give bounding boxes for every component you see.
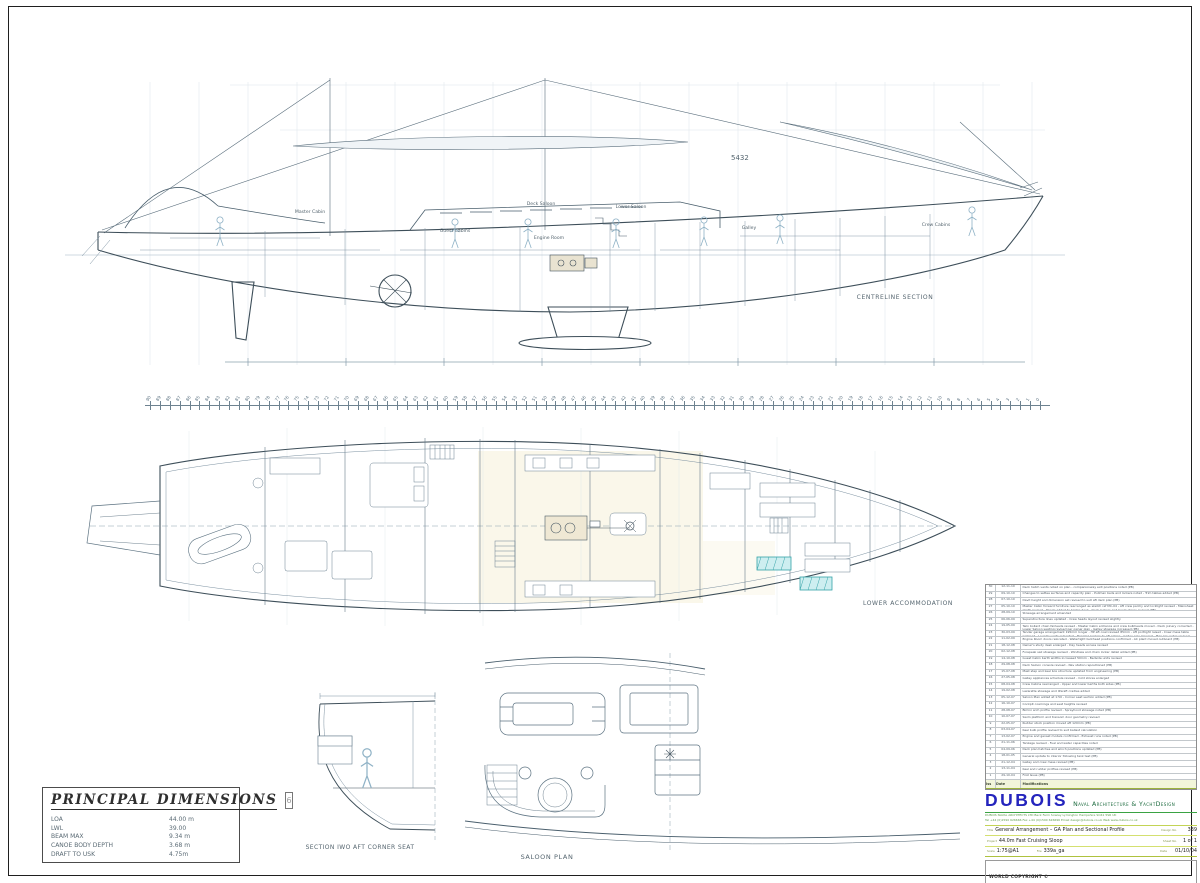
- ruler-tick: [338, 401, 339, 410]
- ruler-tick: [822, 401, 823, 410]
- section-hull: [319, 701, 435, 830]
- dimension-row: BEAM MAX9.34 m: [51, 833, 233, 842]
- file-label: File: [1035, 849, 1044, 853]
- figures: [216, 207, 977, 248]
- scale-value: 1:75@A1: [997, 848, 1035, 854]
- ruler-tick: [763, 401, 764, 410]
- ruler-tick: [961, 401, 962, 410]
- ruler-tick: [466, 401, 467, 410]
- ruler-tick: [605, 401, 606, 410]
- ruler-tick: [911, 401, 912, 410]
- ruler-tick: [635, 401, 636, 410]
- ruler-tick: [852, 401, 853, 410]
- ruler-tick: [704, 401, 705, 410]
- ruler-tick: [813, 401, 814, 410]
- ruler-tick: [150, 401, 151, 410]
- ruler-tick: [447, 401, 448, 410]
- plan-view-label: LOWER ACCOMMODATION: [863, 600, 953, 607]
- ruler-tick: [259, 401, 260, 410]
- title-block-fields: Title General Arrangement – GA Plan and …: [985, 825, 1197, 858]
- scale-label: Scale: [985, 849, 997, 853]
- profile-view-label: CENTRELINE SECTION: [857, 294, 934, 301]
- ruler-tick: [555, 401, 556, 410]
- ruler-tick: [516, 401, 517, 410]
- drawing-sheet: 5432 Master Cabin Guest Cabins Deck Salo…: [0, 0, 1200, 883]
- title-block: DUBOIS Naval Architecture & YachtDesign …: [985, 790, 1197, 878]
- saloon-view-label: SALOON PLAN: [521, 853, 574, 861]
- ruler-tick: [803, 401, 804, 410]
- ruler-number: 5: [985, 397, 991, 402]
- address-line-1: DUBOIS NAVAL ARCHITECTS LTD Beck Farm So…: [985, 814, 1197, 818]
- ruler-tick: [1040, 401, 1041, 410]
- dimensions-ref-box: 6: [285, 792, 292, 809]
- ruler-tick: [190, 401, 191, 410]
- ruler-tick: [724, 401, 725, 410]
- logo-tagline: Naval Architecture & YachtDesign: [1073, 801, 1175, 808]
- interior-lines: [82, 214, 930, 312]
- ruler-number: 6: [975, 397, 981, 402]
- ruler-tick: [753, 401, 754, 410]
- ruler-tick: [684, 401, 685, 410]
- ruler-tick: [199, 401, 200, 410]
- engine-profile: [550, 255, 597, 271]
- ruler-tick: [921, 401, 922, 410]
- ruler-tick: [654, 401, 655, 410]
- rigging-lines: [102, 78, 1042, 236]
- ruler-tick: [674, 401, 675, 410]
- ruler-tick: [644, 401, 645, 410]
- ruler-tick: [872, 401, 873, 410]
- room-label-master-cabin: Master Cabin: [295, 209, 325, 215]
- copyright-title: WORLD COPYRIGHT ©: [989, 875, 1049, 880]
- ruler-tick: [733, 401, 734, 410]
- lower-accommodation-plan: LOWER ACCOMMODATION: [70, 423, 990, 630]
- project-label: Project: [985, 839, 999, 843]
- ruler-tick: [298, 401, 299, 410]
- ruler-tick: [714, 401, 715, 410]
- ruler-tick: [1030, 401, 1031, 410]
- ruler-tick: [229, 401, 230, 410]
- ruler-tick: [457, 401, 458, 410]
- ruler-tick: [694, 401, 695, 410]
- ruler-tick: [1010, 401, 1011, 410]
- deckhouse: [125, 187, 720, 236]
- ruler-tick: [981, 401, 982, 410]
- ruler-tick: [951, 401, 952, 410]
- ruler-tick: [486, 401, 487, 410]
- ruler-tick: [279, 401, 280, 410]
- copyright-box: WORLD COPYRIGHT © Copying, reproduction …: [985, 860, 1197, 883]
- ruler-tick: [308, 401, 309, 410]
- file-name: 339a_ga: [1044, 848, 1158, 854]
- ruler-tick: [832, 401, 833, 410]
- revision-header-row: IssDateModifications: [986, 780, 1196, 789]
- room-label-engine-room: Engine Room: [534, 235, 565, 241]
- section-drawing: SECTION IWO AFT CORNER SEAT: [285, 688, 455, 858]
- saloon-stairs: [487, 765, 517, 805]
- ruler-tick: [377, 401, 378, 410]
- ruler-tick: [971, 401, 972, 410]
- ruler-tick: [417, 401, 418, 410]
- ruler-tick: [348, 401, 349, 410]
- ruler-tick: [1020, 401, 1021, 410]
- ruler-tick: [1000, 401, 1001, 410]
- ruler-tick: [575, 401, 576, 410]
- dimension-row: LWL39.00: [51, 825, 233, 834]
- ruler-tick: [565, 401, 566, 410]
- ruler-tick: [219, 401, 220, 410]
- ruler-tick: [288, 401, 289, 410]
- ruler-tick: [407, 401, 408, 410]
- ruler-tick: [170, 401, 171, 410]
- hull-profile: [98, 196, 1043, 350]
- ruler-tick: [269, 401, 270, 410]
- dimension-row: DRAFT TO USK4.75m: [51, 851, 233, 860]
- ruler-tick: [496, 401, 497, 410]
- room-label-crew-cabins: Crew Cabins: [922, 222, 951, 228]
- frame-station-ruler: 9089888786858483828180797877767574737271…: [145, 388, 1050, 414]
- saloon-plan: SALOON PLAN: [455, 645, 975, 863]
- date-label: Date: [1158, 849, 1169, 853]
- ruler-tick: [476, 401, 477, 410]
- ruler-number: 8: [956, 397, 962, 402]
- room-label-deck-saloon: Deck Saloon: [527, 201, 556, 207]
- ruler-tick: [506, 401, 507, 410]
- ruler-tick: [842, 401, 843, 410]
- dimensions-rows: LOA44.00 mLWL39.00BEAM MAX9.34 mCANOE BO…: [51, 816, 233, 859]
- ruler-tick: [931, 401, 932, 410]
- sail-number: 5432: [731, 154, 749, 162]
- principal-dimensions-table: PRINCIPAL DIMENSIONS 6 LOA44.00 mLWL39.0…: [42, 787, 240, 863]
- ruler-tick: [437, 401, 438, 410]
- ruler-tick: [160, 401, 161, 410]
- revision-table: 3012-11-10Deck hatch vents noted on plan…: [985, 584, 1197, 790]
- ruler-tick: [397, 401, 398, 410]
- ruler-tick: [249, 401, 250, 410]
- drawing-date: 01/10/04: [1169, 848, 1197, 854]
- ruler-tick: [773, 401, 774, 410]
- ruler-tick: [427, 401, 428, 410]
- ruler-tick: [180, 401, 181, 410]
- ruler-number: 7: [966, 397, 972, 402]
- ruler-tick: [595, 401, 596, 410]
- dimensions-title: PRINCIPAL DIMENSIONS: [51, 792, 277, 810]
- ruler-tick: [793, 401, 794, 410]
- room-label-lower-saloon: Lower Saloon: [616, 204, 647, 210]
- ruler-tick: [902, 401, 903, 410]
- ruler-tick: [625, 401, 626, 410]
- ruler-tick: [743, 401, 744, 410]
- design-no-label: Design No.: [1159, 828, 1179, 832]
- dubois-logo: DUBOIS: [985, 790, 1068, 811]
- section-view-label: SECTION IWO AFT CORNER SEAT: [306, 844, 415, 851]
- design-no: 339: [1179, 827, 1197, 833]
- swim-platform: [87, 501, 160, 555]
- ruler-tick: [368, 401, 369, 410]
- ruler-baseline: [145, 405, 1050, 406]
- address-line-2: Tel +44 (0)1590 626666 Fax +44 (0)1590 6…: [985, 819, 1197, 823]
- section-figure: [361, 749, 373, 788]
- room-label-galley: Galley: [742, 225, 757, 231]
- ruler-tick: [664, 401, 665, 410]
- ruler-tick: [882, 401, 883, 410]
- dimension-row: LOA44.00 m: [51, 816, 233, 825]
- ruler-tick: [318, 401, 319, 410]
- ruler-tick: [941, 401, 942, 410]
- drawing-title: General Arrangement – GA Plan and Sectio…: [995, 827, 1159, 833]
- project-name: 44.0m Fast Cruising Sloop: [999, 838, 1161, 844]
- saloon-mast-symbol: [664, 748, 676, 760]
- sheet-no: 1 of 1: [1179, 838, 1197, 844]
- ruler-tick: [783, 401, 784, 410]
- ruler-tick: [387, 401, 388, 410]
- ruler-tick: [358, 401, 359, 410]
- dimension-row: CANOE BODY DEPTH3.68 m: [51, 842, 233, 851]
- ruler-tick: [615, 401, 616, 410]
- profile-drawing: 5432 Master Cabin Guest Cabins Deck Salo…: [80, 60, 1060, 405]
- title-label: Title: [985, 828, 995, 832]
- ruler-tick: [536, 401, 537, 410]
- corner-seat: [318, 736, 352, 764]
- ruler-tick: [546, 401, 547, 410]
- ruler-tick: [209, 401, 210, 410]
- ruler-tick: [892, 401, 893, 410]
- ruler-tick: [526, 401, 527, 410]
- sheet-label: Sheet No.: [1161, 839, 1179, 843]
- ruler-tick: [328, 401, 329, 410]
- ruler-tick: [585, 401, 586, 410]
- ruler-tick: [239, 401, 240, 410]
- ruler-tick: [862, 401, 863, 410]
- tender: [185, 521, 254, 567]
- ruler-tick: [991, 401, 992, 410]
- room-label-guest-cabins: Guest Cabins: [440, 228, 471, 234]
